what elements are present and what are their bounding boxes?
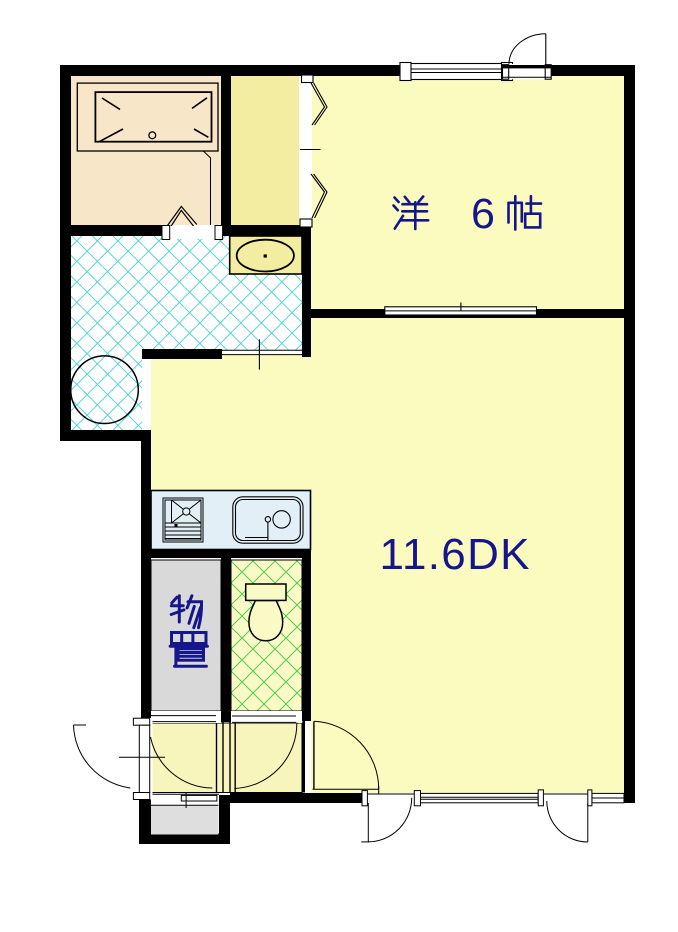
svg-text:11.6DK: 11.6DK: [380, 530, 531, 579]
svg-text:6: 6: [471, 190, 495, 238]
